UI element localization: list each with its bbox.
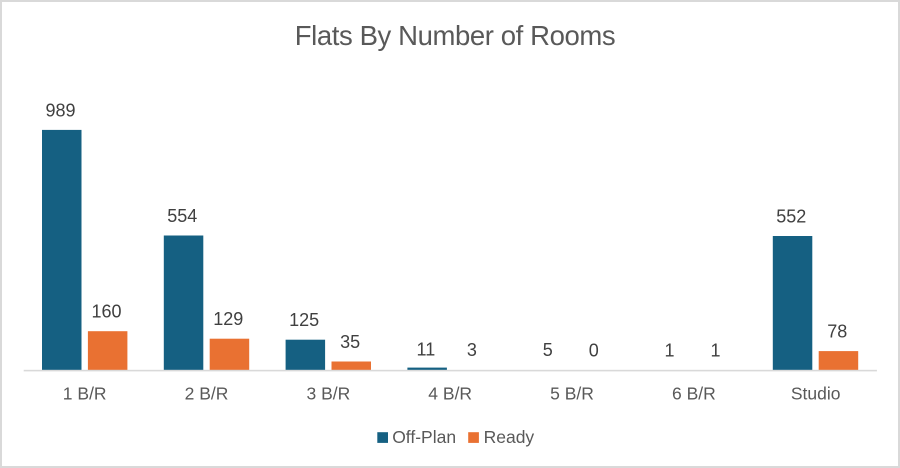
- svg-text:Flats By Number of Rooms: Flats By Number of Rooms: [295, 20, 616, 51]
- svg-text:3: 3: [467, 340, 477, 360]
- svg-text:2 B/R: 2 B/R: [185, 384, 229, 404]
- svg-text:0: 0: [589, 341, 599, 361]
- svg-text:989: 989: [45, 100, 75, 120]
- svg-text:Off-Plan: Off-Plan: [392, 427, 456, 447]
- svg-text:5: 5: [543, 340, 553, 360]
- svg-text:552: 552: [776, 207, 806, 227]
- svg-text:1: 1: [664, 341, 674, 361]
- svg-text:1 B/R: 1 B/R: [63, 384, 107, 404]
- svg-text:6 B/R: 6 B/R: [672, 384, 716, 404]
- svg-text:35: 35: [340, 332, 360, 352]
- svg-text:129: 129: [213, 309, 243, 329]
- svg-text:5 B/R: 5 B/R: [550, 384, 594, 404]
- svg-text:11: 11: [417, 339, 436, 359]
- svg-text:554: 554: [167, 206, 197, 226]
- svg-text:125: 125: [289, 310, 319, 330]
- svg-text:4 B/R: 4 B/R: [428, 384, 472, 404]
- svg-text:Studio: Studio: [791, 384, 841, 404]
- svg-text:1: 1: [710, 341, 720, 361]
- svg-text:78: 78: [827, 322, 847, 342]
- svg-text:3 B/R: 3 B/R: [307, 384, 351, 404]
- svg-text:Ready: Ready: [484, 427, 535, 447]
- svg-text:160: 160: [91, 302, 121, 322]
